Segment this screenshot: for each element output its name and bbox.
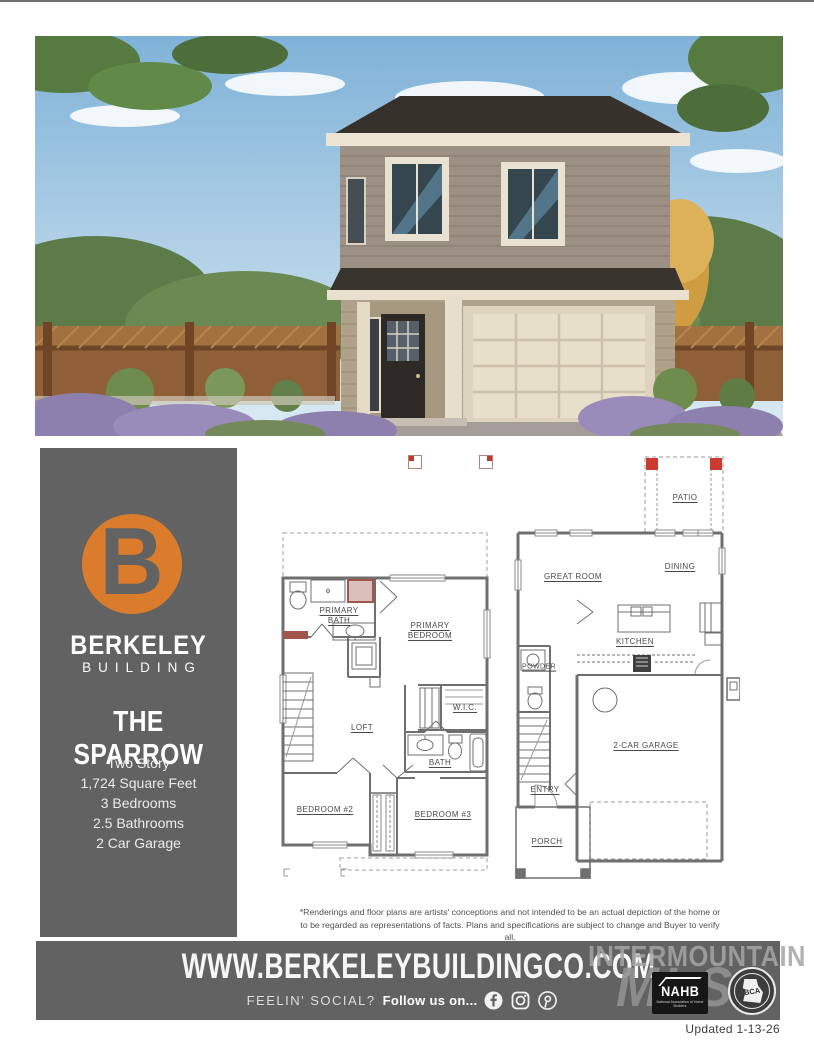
nahb-label: NAHB [661, 984, 699, 998]
spec-bathrooms: 2.5 Bathrooms [40, 813, 237, 833]
top-border-line [0, 0, 814, 2]
room-label-loft: LOFT [351, 723, 373, 733]
website-link[interactable]: WWW.BERKELEYBUILDINGCO.COM [182, 947, 623, 987]
house [326, 96, 690, 426]
house-photo [35, 36, 783, 436]
bca-logo: BCA [728, 967, 776, 1015]
room-label-powder: POWDER [522, 664, 556, 673]
logo-letter: B [100, 514, 164, 610]
disclaimer-text: *Renderings and floor plans are artists'… [298, 906, 722, 944]
main-floor-plan: PATIO GREAT ROOM DINING KITCHEN POWDER 2… [505, 450, 740, 890]
upper-floor-plan: PRIMARY BATH PRIMARY BEDROOM W.I.C. LOFT… [275, 525, 500, 885]
spec-list: Two Story 1,724 Square Feet 3 Bedrooms 2… [40, 753, 237, 853]
brand-name: BERKELEY [52, 630, 225, 661]
room-label-patio: PATIO [673, 493, 698, 503]
spec-bedrooms: 3 Bedrooms [40, 793, 237, 813]
room-label-entry: ENTRY [531, 785, 560, 795]
room-label-bedroom3: BEDROOM #3 [415, 810, 471, 820]
image-placeholder-icon [408, 455, 422, 469]
updated-date: Updated 1-13-26 [685, 1022, 780, 1036]
upper-window-left [385, 157, 449, 241]
nahb-caption: National Association of Home Builders [652, 1000, 708, 1009]
room-label-dining: DINING [665, 562, 695, 572]
room-label-kitchen: KITCHEN [616, 637, 654, 647]
social-prefix-text: FEELIN' SOCIAL? [247, 993, 376, 1008]
pinterest-icon[interactable] [538, 991, 557, 1010]
front-door [381, 314, 425, 418]
upper-window-right [501, 162, 565, 246]
room-label-primary-bath: PRIMARY BATH [313, 606, 365, 626]
facebook-icon[interactable] [484, 991, 503, 1010]
room-label-porch: PORCH [532, 837, 563, 847]
room-label-bath: BATH [429, 758, 451, 768]
room-label-great-room: GREAT ROOM [544, 572, 602, 582]
house-scene-illustration [35, 36, 783, 436]
social-icons [484, 991, 557, 1010]
nahb-logo: NAHB National Association of Home Builde… [652, 972, 708, 1014]
flyer-page: B BERKELEY BUILDING THE SPARROW Two Stor… [0, 0, 814, 1056]
bca-state-shape-icon: BCA [741, 979, 763, 1003]
brand-subtitle: BUILDING [40, 660, 237, 675]
room-label-garage: 2-CAR GARAGE [613, 741, 678, 751]
room-label-primary-bedroom: PRIMARY BEDROOM [401, 621, 459, 641]
room-label-wic: W.I.C. [453, 703, 477, 713]
image-placeholder-icon [479, 455, 493, 469]
room-label-bedroom2: BEDROOM #2 [297, 805, 353, 815]
bca-ring-icon: BCA [734, 973, 770, 1009]
social-row: FEELIN' SOCIAL? Follow us on... [112, 991, 692, 1010]
spec-garage: 2 Car Garage [40, 833, 237, 853]
footer-bar: INTERMOUNTAIN MLS WWW.BERKELEYBUILDINGCO… [36, 941, 780, 1020]
spec-square-feet: 1,724 Square Feet [40, 773, 237, 793]
instagram-icon[interactable] [511, 991, 530, 1010]
berkeley-logo-icon: B [82, 514, 182, 614]
social-cta-text: Follow us on... [383, 993, 478, 1008]
bca-label: BCA [743, 985, 760, 996]
sidebar: B BERKELEY BUILDING THE SPARROW Two Stor… [40, 448, 237, 937]
spec-stories: Two Story [40, 753, 237, 773]
